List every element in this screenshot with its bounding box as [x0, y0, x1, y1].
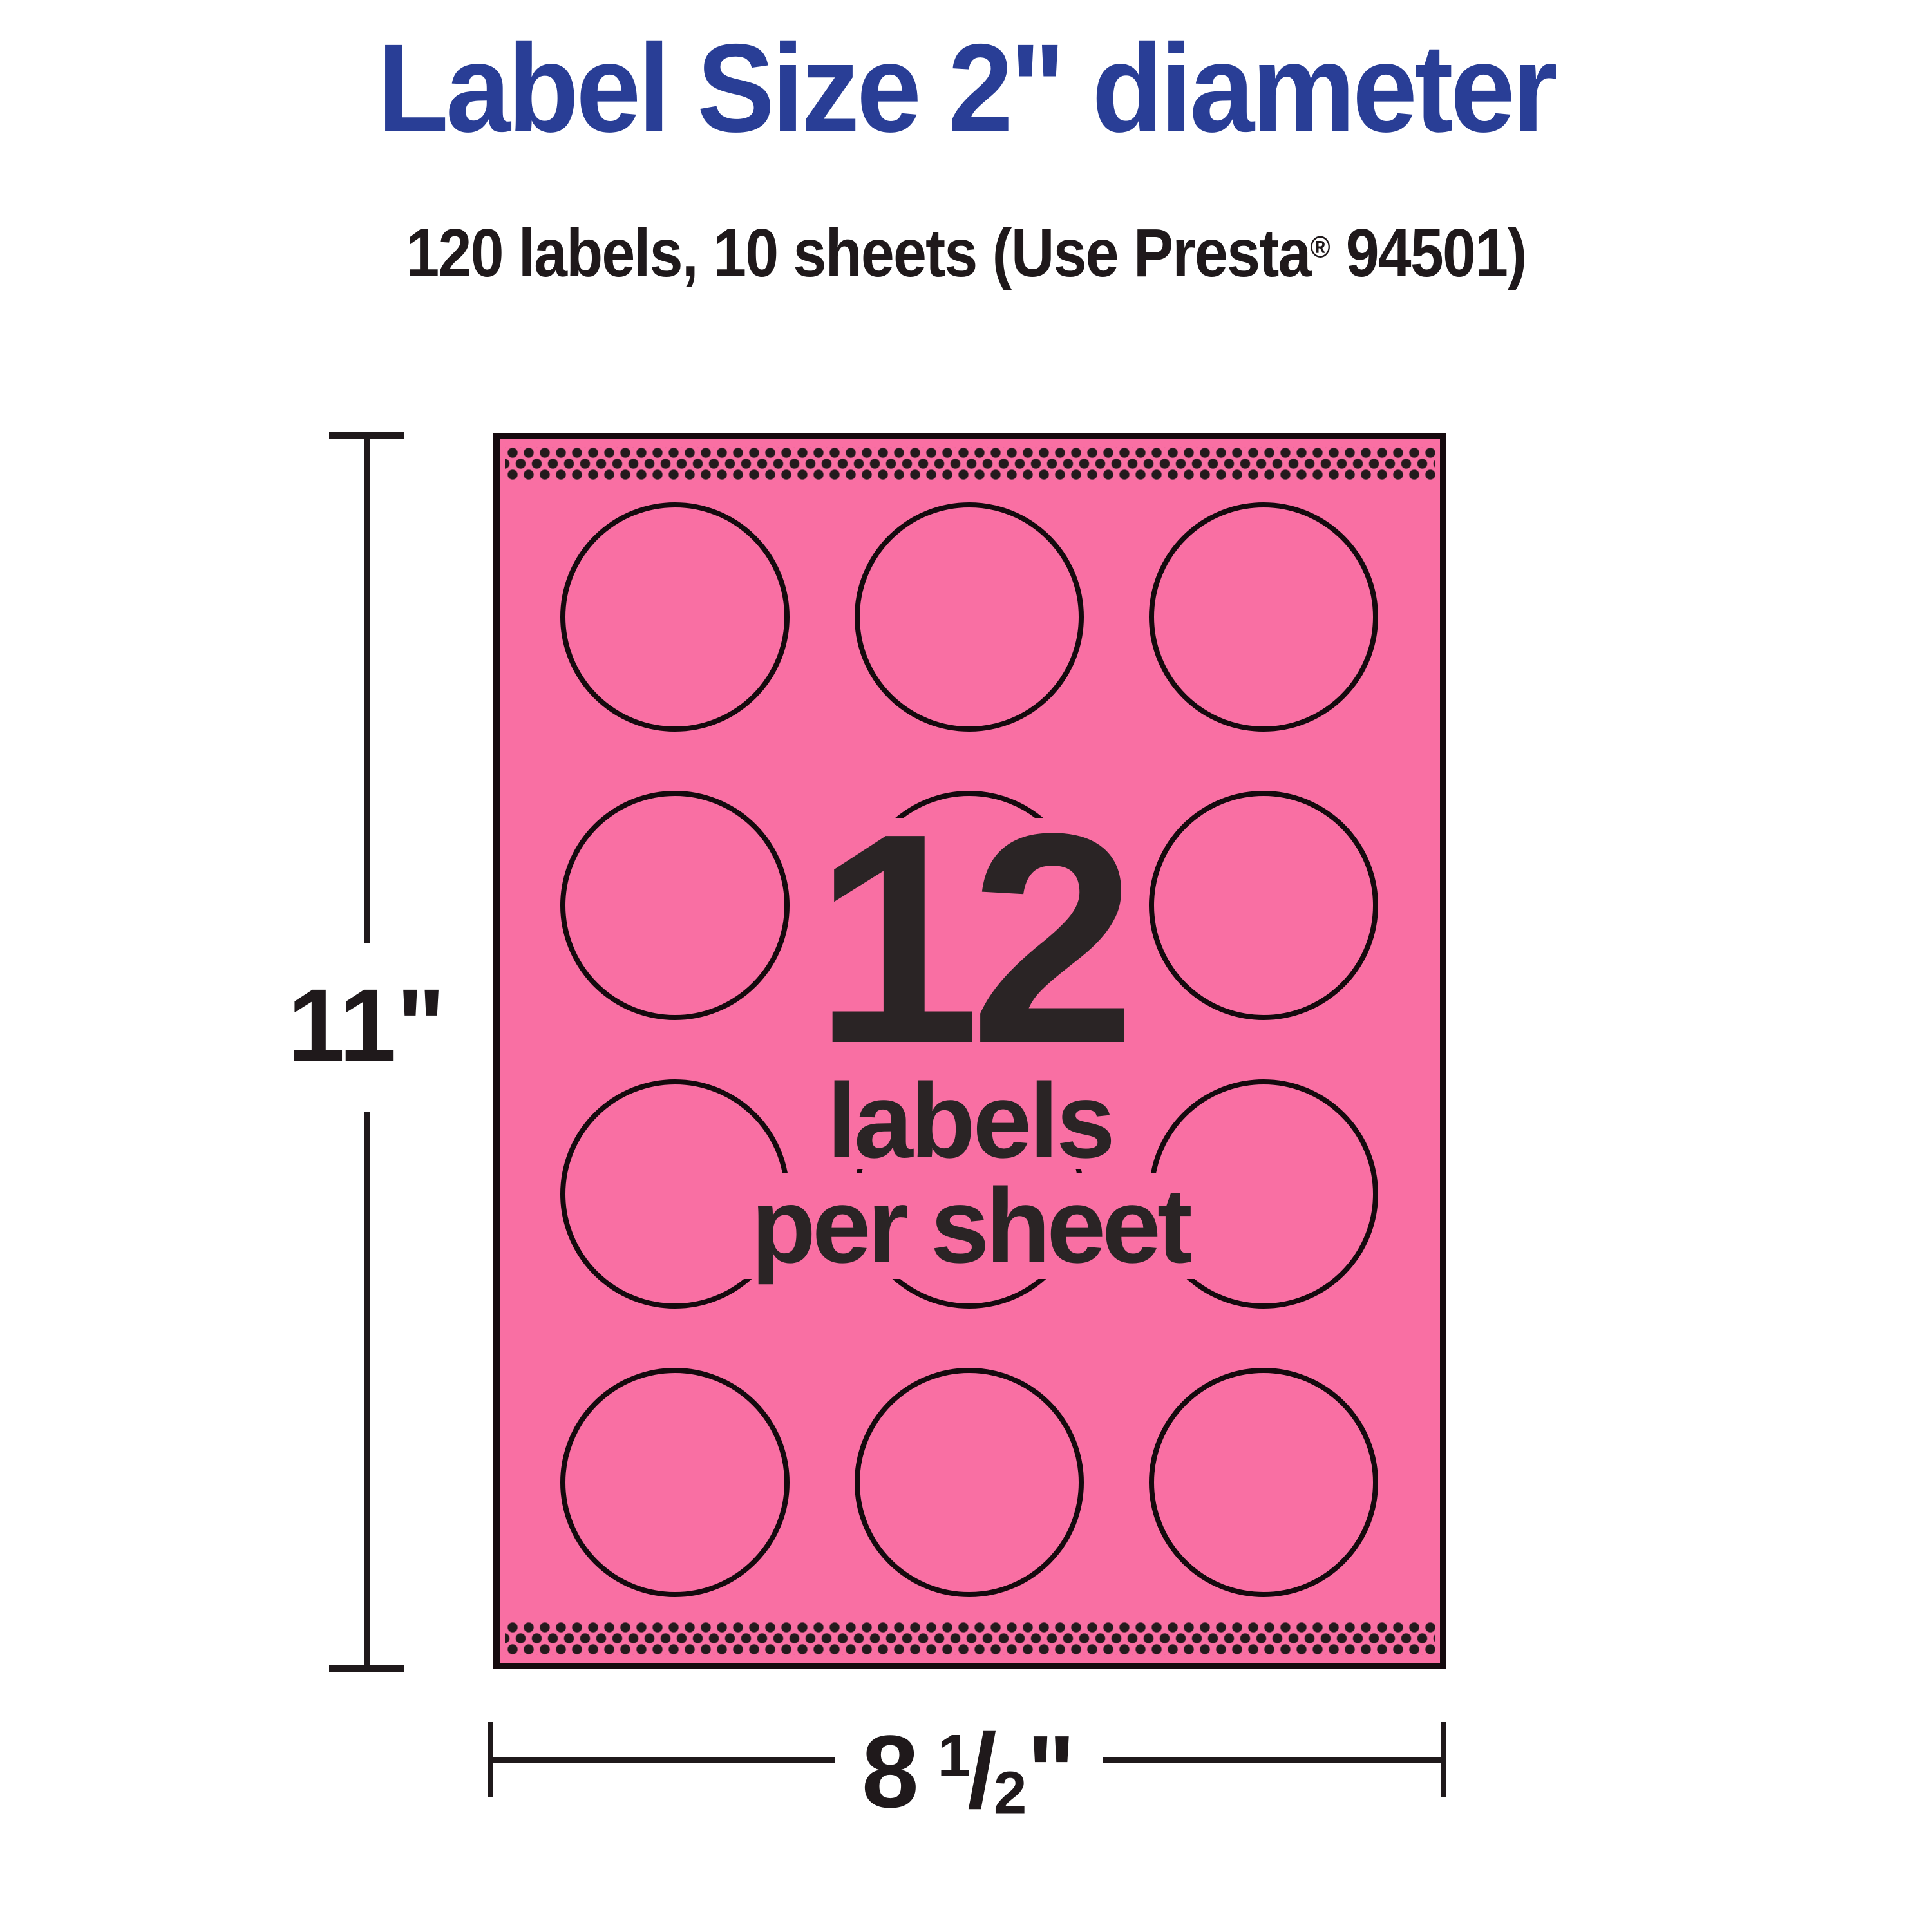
- width-dim-line-left: [488, 1757, 835, 1763]
- width-dimension-label: 81/2": [840, 1704, 1097, 1844]
- width-whole-number: 8: [862, 1714, 919, 1829]
- label-circle: [560, 502, 790, 732]
- label-sheet: 12 labels per sheet: [493, 433, 1446, 1669]
- subtitle-text: 120 labels, 10 sheets (Use Presta: [406, 215, 1310, 291]
- labels-count: 12: [794, 818, 1145, 1059]
- label-circle: [1149, 1368, 1378, 1597]
- labels-per-sheet-callout: 12 labels per sheet: [500, 818, 1440, 1279]
- labels-word: labels: [791, 1072, 1148, 1169]
- perforation-strip-bottom: [505, 1622, 1435, 1655]
- per-sheet-words: per sheet: [725, 1173, 1215, 1279]
- height-dimension-label: 11": [254, 974, 479, 1077]
- label-circle: [560, 1368, 790, 1597]
- label-circle: [855, 1368, 1084, 1597]
- label-circle: [855, 502, 1084, 732]
- subtitle: 120 labels, 10 sheets (Use Presta® 94501…: [116, 213, 1816, 294]
- width-dim-line-right: [1103, 1757, 1446, 1763]
- height-dim-cap-bottom: [329, 1665, 404, 1672]
- width-fraction-numerator: 1: [938, 1722, 971, 1789]
- page-title: Label Size 2" diameter: [68, 13, 1864, 164]
- perforation-strip-top: [505, 447, 1435, 480]
- subtitle-product-number: 94501): [1331, 215, 1526, 291]
- width-dim-cap-right: [1441, 1722, 1446, 1797]
- height-dim-line-upper: [364, 432, 370, 943]
- label-circle: [1149, 502, 1378, 732]
- width-fraction-slash: /: [967, 1712, 996, 1830]
- width-unit-mark: ": [1027, 1714, 1075, 1829]
- label-sheet-diagram: Label Size 2" diameter 120 labels, 10 sh…: [0, 0, 1932, 1932]
- height-dim-line-lower: [364, 1112, 370, 1672]
- width-fraction-denominator: 2: [994, 1759, 1027, 1826]
- registered-trademark-symbol: ®: [1311, 230, 1331, 264]
